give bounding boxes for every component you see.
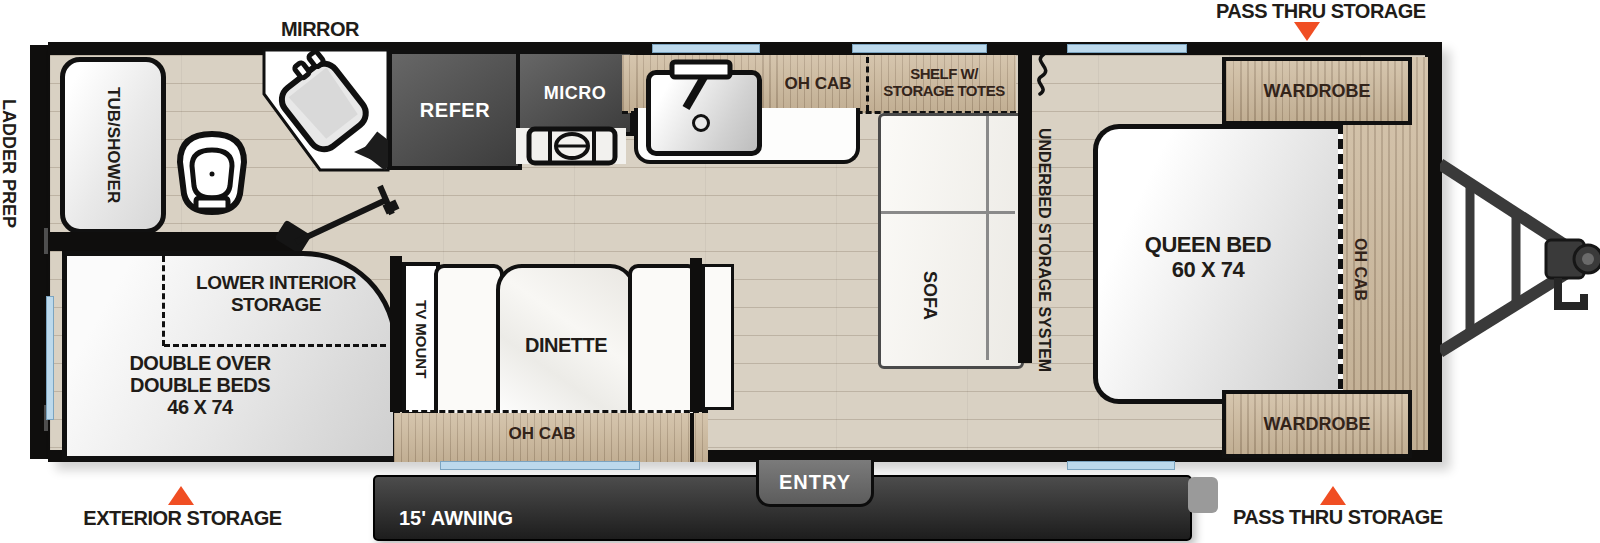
sofa-cushion-line [881,211,1015,214]
shelf-totes-label: SHELF W/ STORAGE TOTES [872,65,1016,99]
kitchen-band-divider-dash [866,57,869,111]
lower-interior-storage-label: LOWER INTERIOR STORAGE [176,272,376,316]
wardrobe-top: WARDROBE [1222,57,1412,125]
pass-thru-bottom-indicator-icon [1320,486,1346,505]
dinette-table: DINETTE [496,264,636,426]
bathroom-wall [50,232,298,251]
entry-grab-handle [1188,477,1218,513]
sofa-back-line [986,116,989,360]
micro-label: MICRO [544,83,607,104]
window-bottom-entry [1067,461,1175,470]
tv-wall [390,256,402,412]
window-bottom-dinette [440,461,640,470]
exterior-storage-label: EXTERIOR STORAGE [60,507,305,530]
double-beds-label: DOUBLE OVER DOUBLE BEDS 46 X 74 [95,352,305,418]
dinette-ohcab-divider [690,413,694,462]
pass-thru-top-indicator-icon [1294,22,1320,41]
window-top-sofa [852,44,987,53]
dinette-counter-end [702,264,734,410]
window-top-bedroom [1067,44,1187,53]
entry-door-tab: ENTRY [756,460,874,507]
wardrobe-top-label: WARDROBE [1264,81,1371,102]
ladder-prep-label: LADDER PREP [0,58,18,270]
pass-thru-top-label: PASS THRU STORAGE [1216,0,1416,23]
tub-shower-label: TUB/SHOWER [105,87,122,203]
floorplan-canvas: LADDER PREP TUB/SHOWER [0,0,1600,543]
exterior-storage-indicator-icon [168,486,194,505]
toilet-icon [172,128,252,222]
lower-storage-dash-horizontal [164,344,386,347]
wardrobe-bottom-label: WARDROBE [1264,414,1371,435]
refer-label: REFER [420,99,490,122]
entry-label: ENTRY [779,471,851,494]
cooktop-icon [526,126,618,166]
bed-ohcab-label: OH CAB [1352,218,1368,322]
faucet-icon [662,56,740,114]
dinette-bench-right [628,264,698,422]
dinette-label: DINETTE [525,334,607,357]
dinette-ohcab-label: OH CAB [394,424,690,444]
pass-thru-bottom-label: PASS THRU STORAGE [1233,506,1433,529]
sink-drain [692,114,710,132]
window-rear-wall [46,296,54,420]
slide-break-squiggle [1030,52,1056,96]
lower-storage-dash-vertical [162,256,165,346]
hitch-a-frame [1440,148,1600,368]
bathroom-door [276,178,402,260]
queen-bed-label: QUEEN BED 60 X 74 [1108,232,1308,282]
tub-shower: TUB/SHOWER [60,57,166,234]
kitchen-ohcab-label: OH CAB [770,74,866,94]
window-top-kitchen [652,44,760,53]
awning-label: 15' AWNING [399,507,513,530]
mirror-label: MIRROR [240,18,400,41]
bedroom-divider-wall [1018,55,1032,363]
dinette-bench-left [434,264,504,422]
dinette-wall-right [690,258,702,412]
wardrobe-bottom: WARDROBE [1222,390,1412,458]
microwave: MICRO [516,50,634,136]
refrigerator: REFER [388,50,522,170]
tv-mount-label: TV MOUNT [414,300,429,378]
sofa-label: SOFA [921,248,939,344]
underbed-storage-label: UNDERBED STORAGE SYSTEM [1036,104,1052,396]
sofa: SOFA [878,113,1024,369]
